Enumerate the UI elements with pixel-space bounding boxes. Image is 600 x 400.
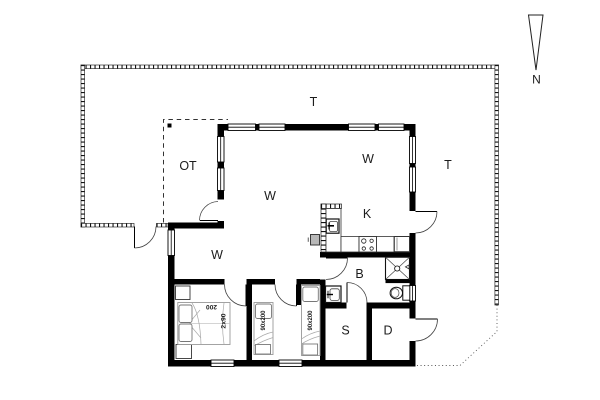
svg-text:90x200: 90x200 <box>308 310 314 331</box>
svg-text:200: 200 <box>206 303 217 310</box>
svg-text:N: N <box>532 73 541 87</box>
svg-text:W: W <box>362 152 374 166</box>
svg-text:W: W <box>211 248 223 262</box>
svg-text:D: D <box>383 323 392 337</box>
svg-text:90x200: 90x200 <box>261 310 267 331</box>
svg-text:T: T <box>444 158 452 172</box>
svg-text:B: B <box>355 267 363 281</box>
svg-text:K: K <box>363 207 372 221</box>
svg-text:S: S <box>341 323 349 337</box>
svg-text:T: T <box>310 95 318 109</box>
svg-text:2x90: 2x90 <box>220 313 227 328</box>
svg-text:W: W <box>264 189 276 203</box>
svg-text:OT: OT <box>179 159 197 173</box>
